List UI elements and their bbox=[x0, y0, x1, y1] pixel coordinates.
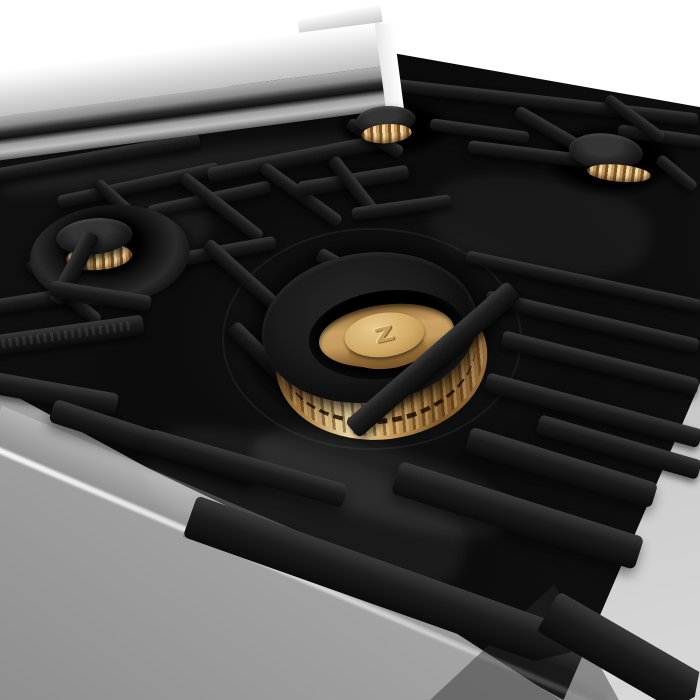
burner-brass-knurl-ring bbox=[586, 162, 651, 185]
product-photo-gas-range-cooktop: Z bbox=[0, 0, 700, 700]
burner-main: Z bbox=[245, 234, 508, 462]
burner-top-right bbox=[550, 125, 675, 197]
burner-top-middle bbox=[350, 100, 425, 151]
